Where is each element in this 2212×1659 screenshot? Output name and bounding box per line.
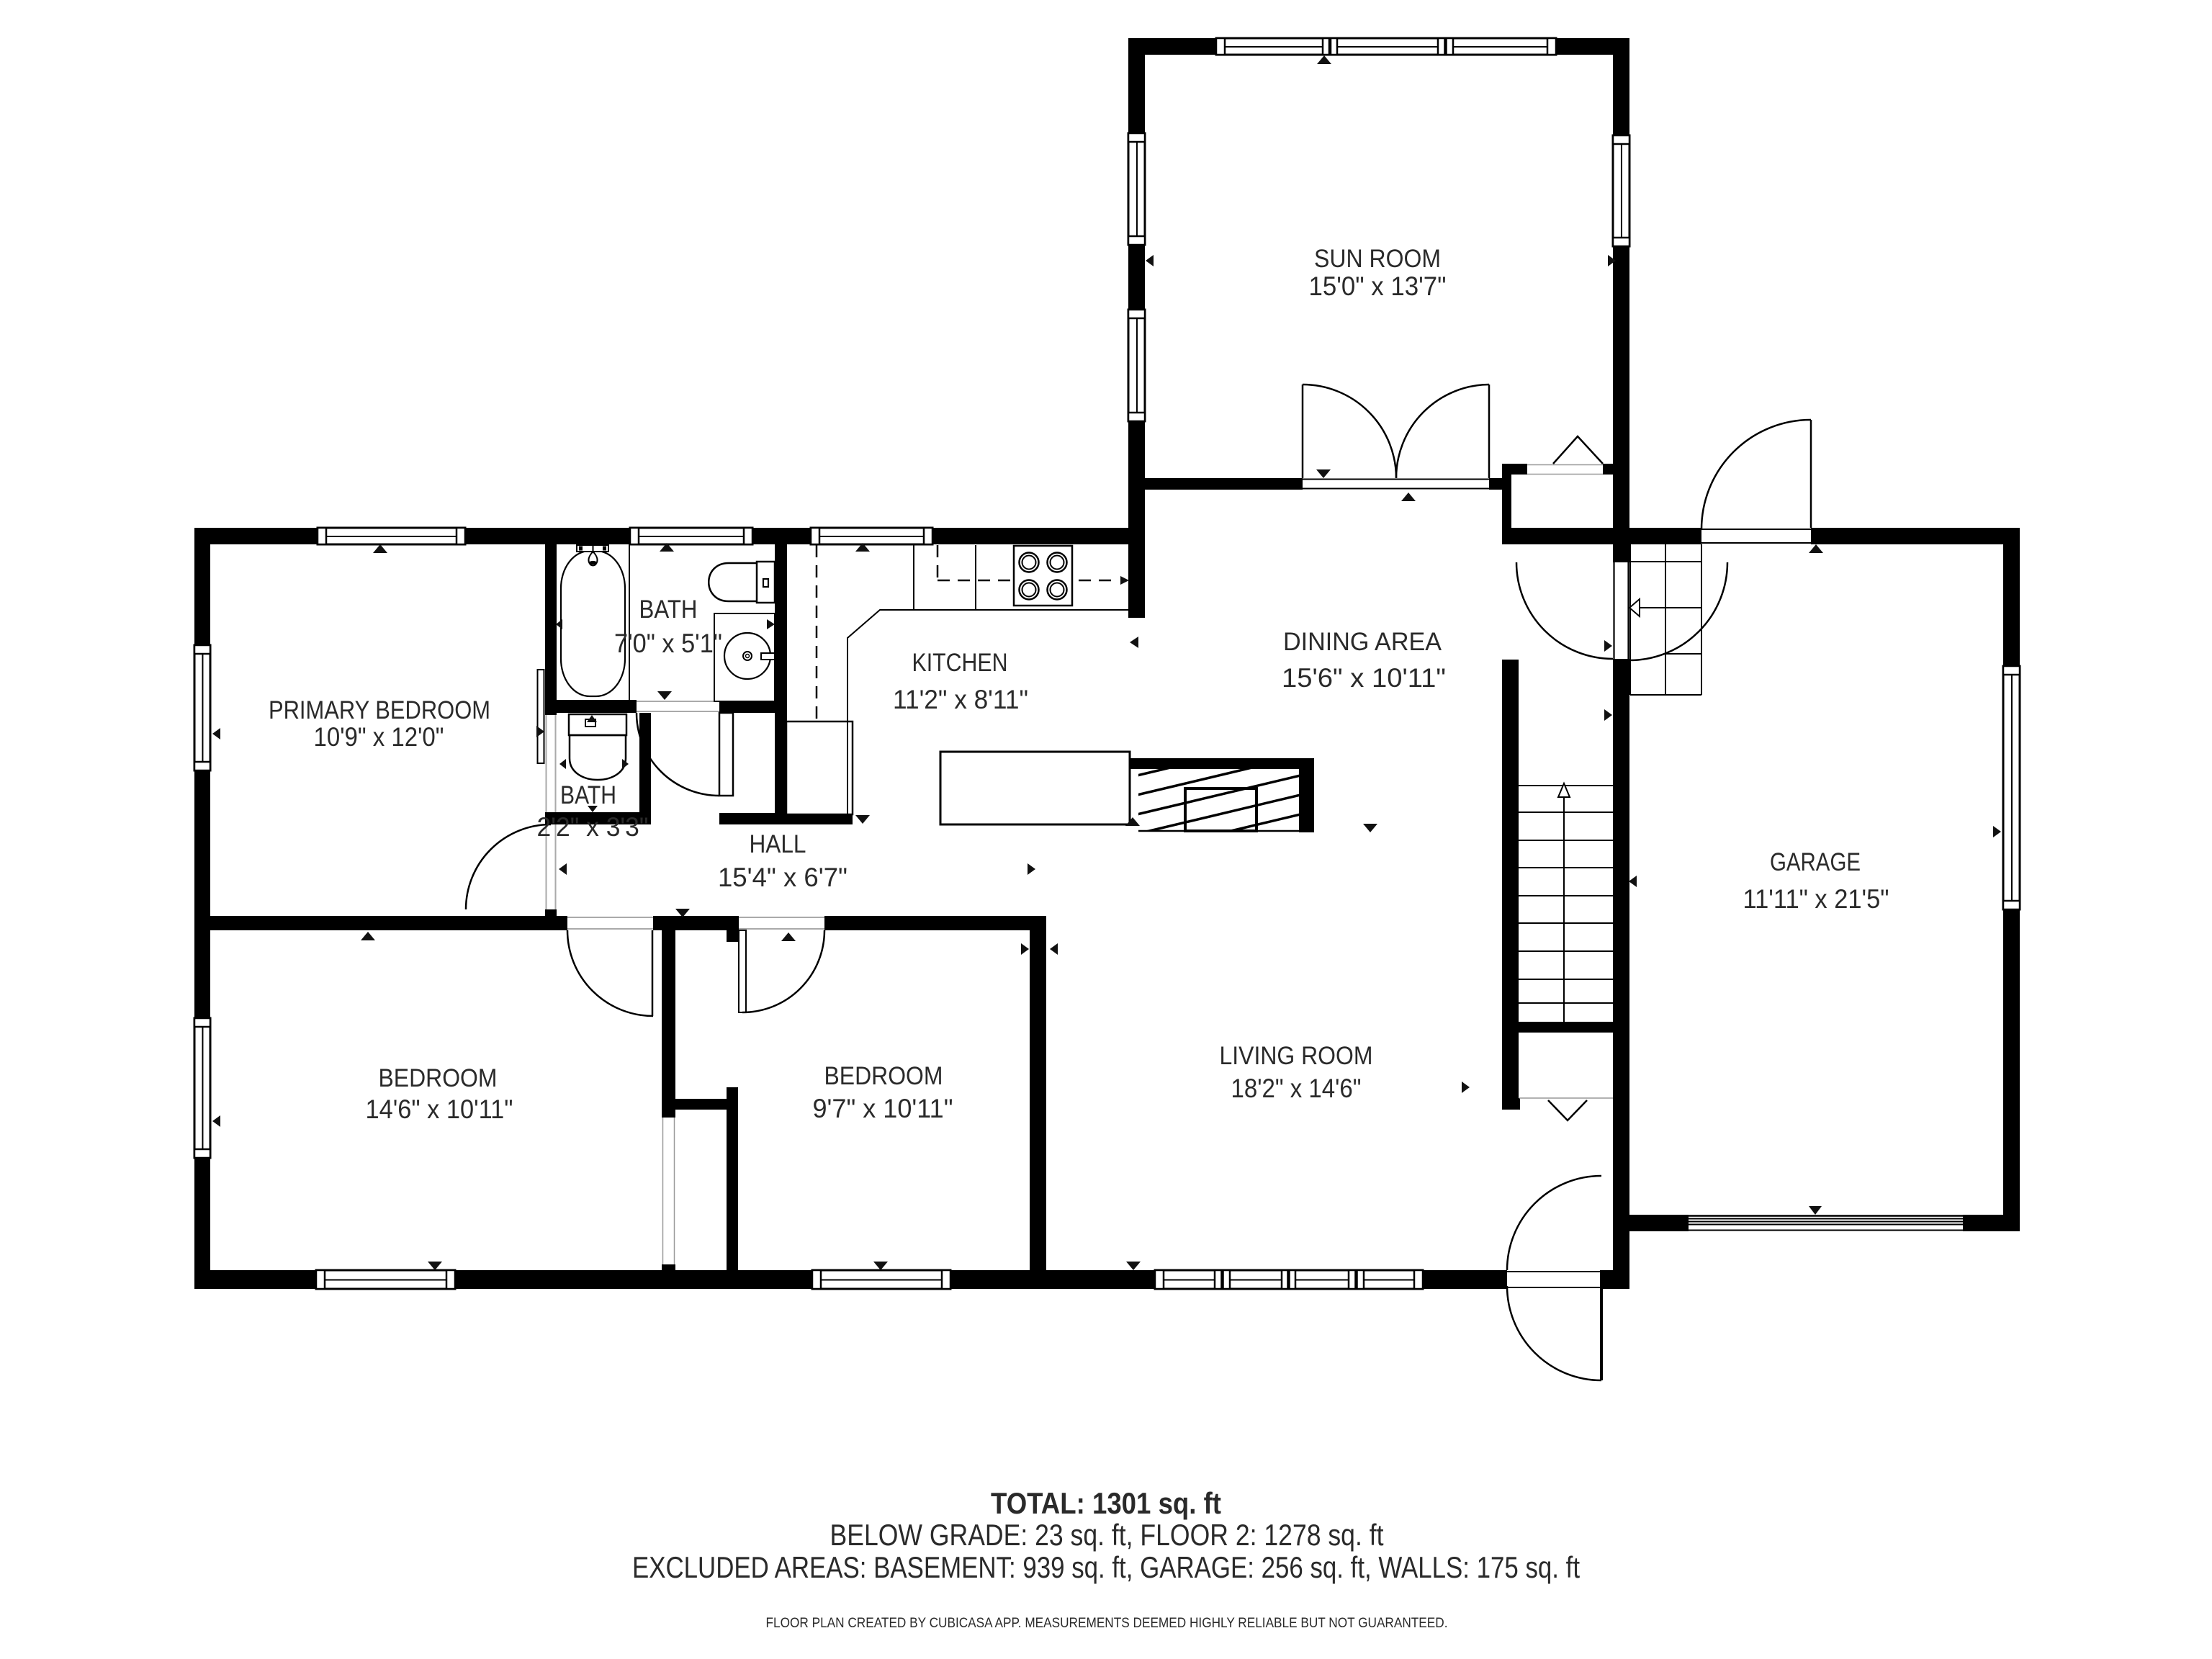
svg-text:BATH: BATH: [639, 595, 698, 624]
svg-text:11'11" x 21'5": 11'11" x 21'5": [1743, 884, 1889, 914]
svg-text:LIVING ROOM: LIVING ROOM: [1220, 1042, 1373, 1070]
svg-text:KITCHEN: KITCHEN: [912, 649, 1008, 677]
svg-text:7'0" x 5'1": 7'0" x 5'1": [614, 629, 722, 658]
svg-text:TOTAL: 1301 sq. ft: TOTAL: 1301 sq. ft: [991, 1486, 1221, 1520]
svg-text:10'9" x 12'0": 10'9" x 12'0": [314, 722, 444, 752]
svg-text:9'7" x 10'11": 9'7" x 10'11": [813, 1094, 953, 1123]
svg-text:15'6" x 10'11": 15'6" x 10'11": [1282, 663, 1446, 693]
svg-text:2'2" x 3'3": 2'2" x 3'3": [537, 812, 649, 842]
svg-text:HALL: HALL: [750, 830, 806, 858]
svg-text:15'4" x 6'7": 15'4" x 6'7": [718, 863, 848, 892]
svg-text:GARAGE: GARAGE: [1770, 848, 1861, 876]
svg-text:BATH: BATH: [560, 781, 616, 809]
svg-text:15'0" x 13'7": 15'0" x 13'7": [1309, 271, 1447, 301]
svg-text:EXCLUDED AREAS: BASEMENT: 939: EXCLUDED AREAS: BASEMENT: 939 sq. ft, GA…: [632, 1550, 1580, 1584]
svg-text:BELOW GRADE: 23 sq. ft, FLOOR: BELOW GRADE: 23 sq. ft, FLOOR 2: 1278 sq…: [830, 1518, 1384, 1552]
svg-text:18'2" x 14'6": 18'2" x 14'6": [1231, 1074, 1362, 1103]
svg-text:BEDROOM: BEDROOM: [824, 1062, 943, 1090]
svg-text:14'6" x 10'11": 14'6" x 10'11": [366, 1094, 513, 1124]
svg-text:BEDROOM: BEDROOM: [379, 1064, 498, 1092]
svg-text:FLOOR PLAN CREATED BY CUBICASA: FLOOR PLAN CREATED BY CUBICASA APP. MEAS…: [766, 1616, 1448, 1631]
svg-text:DINING AREA: DINING AREA: [1283, 628, 1442, 656]
svg-text:PRIMARY BEDROOM: PRIMARY BEDROOM: [269, 696, 490, 724]
svg-text:SUN ROOM: SUN ROOM: [1314, 245, 1441, 273]
svg-text:11'2" x 8'11": 11'2" x 8'11": [893, 685, 1028, 714]
